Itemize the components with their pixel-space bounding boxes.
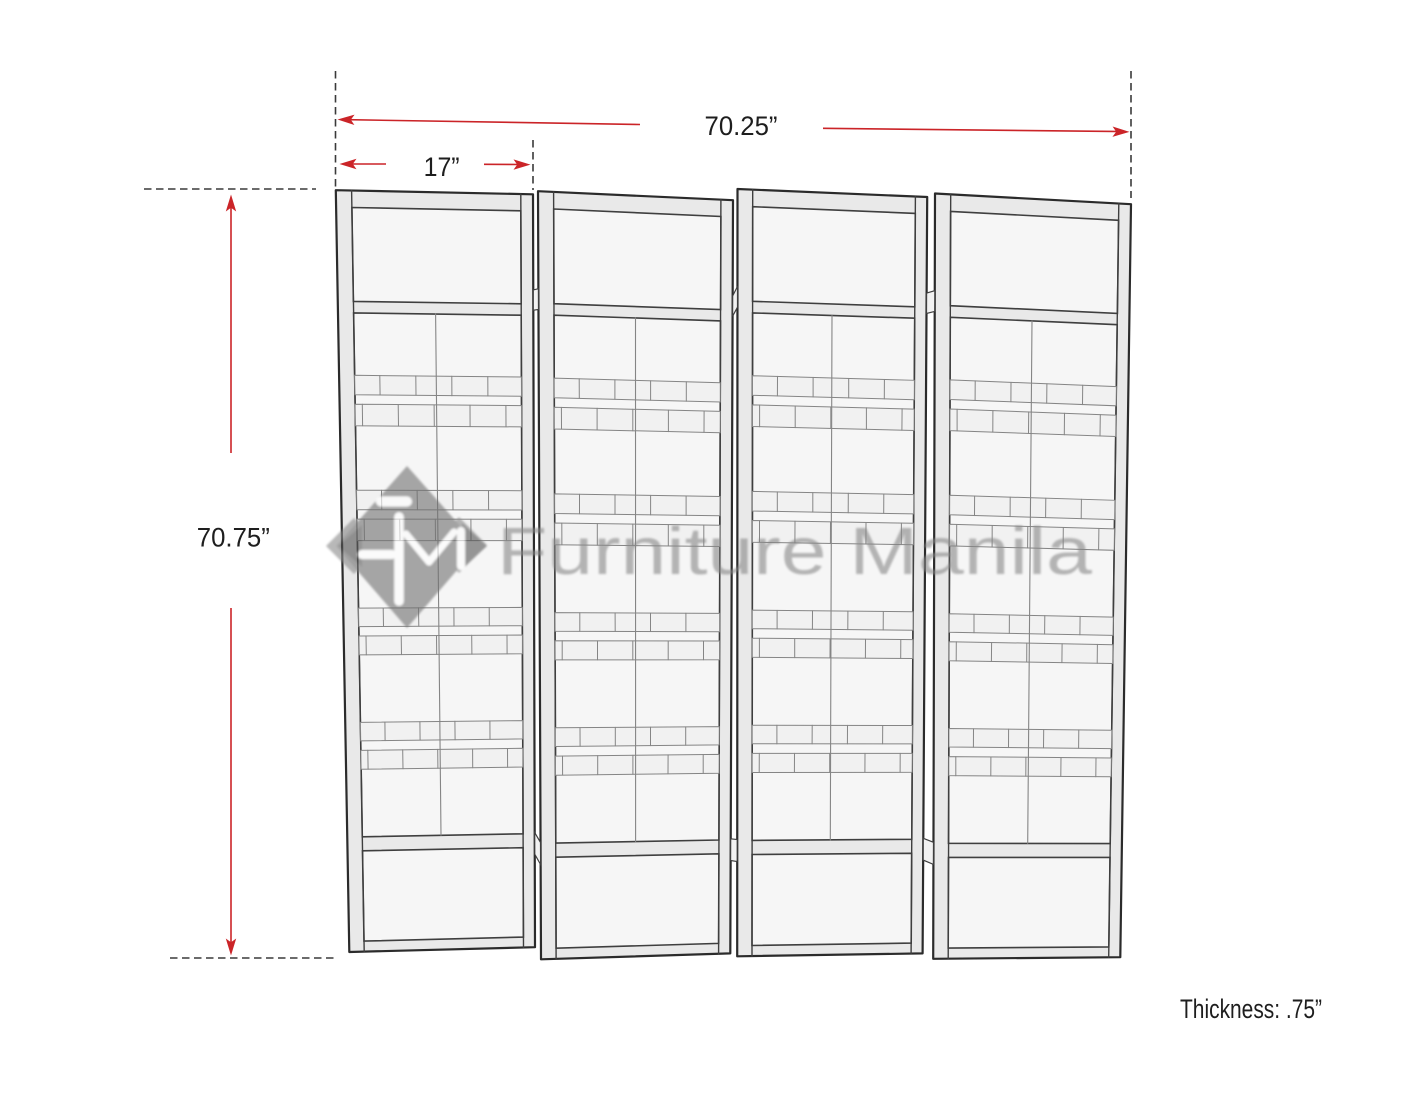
svg-text:Furniture Manila: Furniture Manila	[497, 514, 1093, 589]
svg-text:70.25”: 70.25”	[705, 111, 778, 141]
svg-text:70.75”: 70.75”	[197, 523, 270, 553]
svg-text:Thickness: .75”: Thickness: .75”	[1180, 994, 1322, 1024]
svg-text:17”: 17”	[424, 152, 460, 182]
